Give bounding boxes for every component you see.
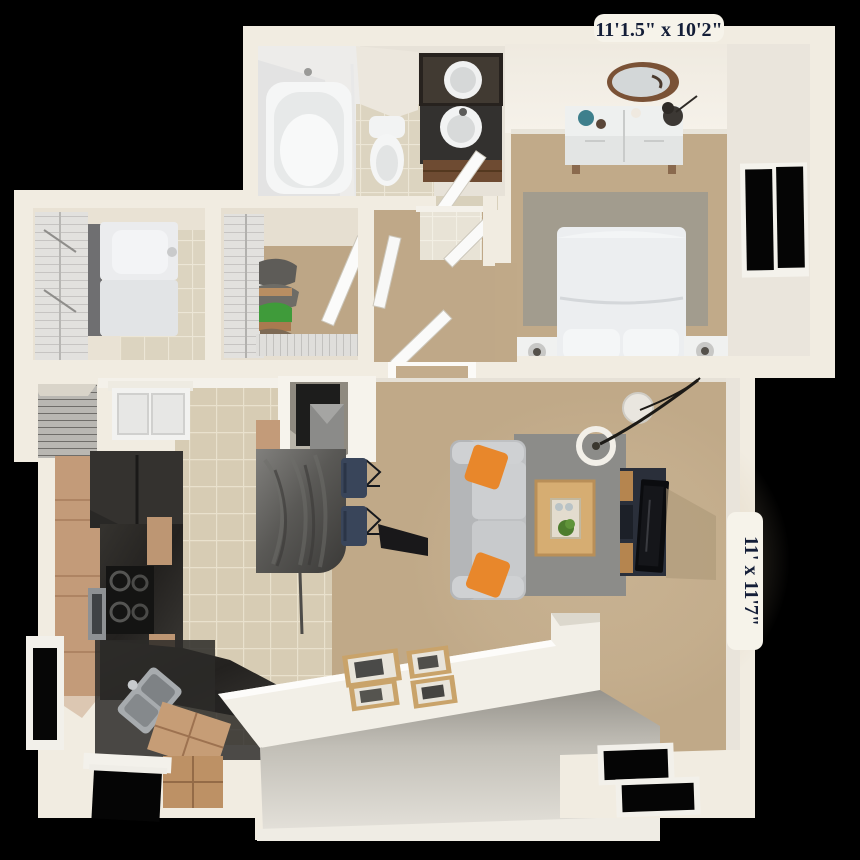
- svg-text:11'1.5" x 10'2": 11'1.5" x 10'2": [595, 19, 722, 41]
- svg-text:11' x 11'7": 11' x 11'7": [740, 536, 762, 626]
